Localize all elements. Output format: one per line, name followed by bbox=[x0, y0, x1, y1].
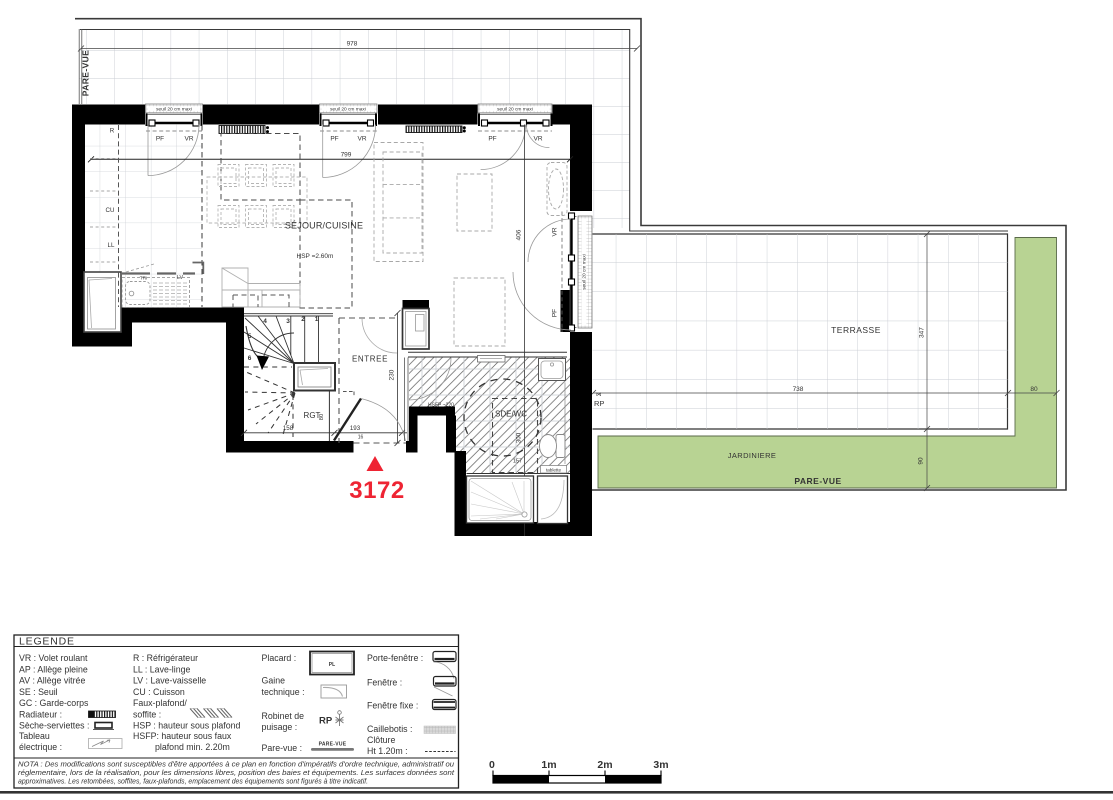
svg-text:4: 4 bbox=[263, 318, 267, 325]
svg-text:Ht 1.20m :: Ht 1.20m : bbox=[367, 746, 408, 756]
svg-text:2: 2 bbox=[301, 316, 305, 323]
svg-text:RP: RP bbox=[319, 716, 333, 727]
svg-text:Fenêtre :: Fenêtre : bbox=[367, 678, 402, 688]
svg-text:PARE-VUE: PARE-VUE bbox=[794, 476, 841, 486]
svg-text:CU: CU bbox=[106, 207, 115, 214]
svg-text:NOTA : Des modifications sont: NOTA : Des modifications sont susceptibl… bbox=[18, 762, 454, 769]
svg-text:Porte-fenêtre :: Porte-fenêtre : bbox=[367, 653, 423, 663]
svg-text:RGT: RGT bbox=[304, 411, 321, 420]
svg-text:SÉJOUR/CUISINE: SÉJOUR/CUISINE bbox=[285, 221, 363, 231]
svg-text:LL: LL bbox=[108, 242, 115, 249]
svg-text:puisage :: puisage : bbox=[262, 722, 298, 732]
svg-text:Clôture: Clôture bbox=[367, 735, 395, 745]
svg-text:3m: 3m bbox=[653, 759, 668, 771]
svg-text:16: 16 bbox=[358, 435, 364, 441]
svg-text:3: 3 bbox=[286, 318, 290, 325]
svg-text:PF: PF bbox=[488, 136, 496, 143]
svg-text:Sèche-serviettes :: Sèche-serviettes : bbox=[19, 720, 89, 730]
svg-text:738: 738 bbox=[793, 386, 804, 393]
svg-text:AV : Allège vitrée: AV : Allège vitrée bbox=[19, 676, 85, 686]
svg-text:Pare-vue :: Pare-vue : bbox=[262, 743, 303, 753]
svg-text:HSP : hauteur sous plafond: HSP : hauteur sous plafond bbox=[133, 720, 241, 730]
svg-text:HSFP: hauteur sous faux: HSFP: hauteur sous faux bbox=[133, 731, 232, 741]
svg-text:PF: PF bbox=[156, 136, 164, 143]
svg-text:VR: VR bbox=[533, 136, 542, 143]
svg-text:193: 193 bbox=[350, 425, 361, 432]
svg-text:JARDINIERE: JARDINIERE bbox=[728, 451, 777, 460]
svg-text:seuil 20 cm maxi: seuil 20 cm maxi bbox=[497, 106, 533, 112]
svg-text:Placard :: Placard : bbox=[262, 653, 297, 663]
svg-text:LV : Lave-vaisselle: LV : Lave-vaisselle bbox=[133, 676, 206, 686]
svg-text:406: 406 bbox=[516, 229, 523, 240]
svg-text:1: 1 bbox=[315, 316, 319, 323]
svg-text:SDE/WC: SDE/WC bbox=[495, 410, 527, 419]
svg-text:Fenêtre fixe :: Fenêtre fixe : bbox=[367, 701, 418, 711]
svg-text:VR : Volet roulant: VR : Volet roulant bbox=[19, 653, 88, 663]
svg-text:VR: VR bbox=[357, 136, 366, 143]
svg-text:LV: LV bbox=[177, 275, 183, 281]
svg-text:AP : Allège pleine: AP : Allège pleine bbox=[19, 664, 88, 674]
svg-text:CU : Cuisson: CU : Cuisson bbox=[133, 687, 185, 697]
svg-text:1m: 1m bbox=[541, 759, 556, 771]
svg-text:TRi: TRi bbox=[140, 276, 147, 282]
svg-text:technique :: technique : bbox=[262, 687, 305, 697]
svg-text:HSFP ~220: HSFP ~220 bbox=[428, 403, 454, 409]
svg-text:réglementaire, lors de la réal: réglementaire, lors de la réalisation, p… bbox=[18, 770, 455, 777]
svg-text:158: 158 bbox=[283, 425, 294, 432]
svg-text:⋈: ⋈ bbox=[596, 392, 602, 398]
svg-text:tablette: tablette bbox=[546, 467, 562, 472]
svg-text:PL: PL bbox=[329, 662, 335, 668]
svg-text:80: 80 bbox=[1030, 386, 1038, 393]
svg-text:0: 0 bbox=[489, 759, 495, 771]
svg-text:ENTREE: ENTREE bbox=[352, 355, 388, 364]
svg-text:Tableau: Tableau bbox=[19, 731, 50, 741]
svg-text:seuil 20 cm maxi: seuil 20 cm maxi bbox=[330, 106, 366, 112]
svg-text:2m: 2m bbox=[597, 759, 612, 771]
svg-text:Caillebotis :: Caillebotis : bbox=[367, 724, 412, 734]
svg-text:Faux-plafond/: Faux-plafond/ bbox=[133, 698, 187, 708]
svg-text:RP: RP bbox=[594, 399, 604, 408]
svg-text:seuil 20 cm maxi: seuil 20 cm maxi bbox=[156, 106, 192, 112]
svg-text:Robinet de: Robinet de bbox=[262, 711, 305, 721]
svg-text:seuil 20 cm maxi: seuil 20 cm maxi bbox=[582, 254, 588, 290]
svg-text:R : Réfrigérateur: R : Réfrigérateur bbox=[133, 653, 198, 663]
svg-text:SE : Seuil: SE : Seuil bbox=[19, 687, 58, 697]
svg-text:HSP =2.60m: HSP =2.60m bbox=[297, 253, 334, 260]
svg-text:électrique :: électrique : bbox=[19, 742, 62, 752]
svg-text:80: 80 bbox=[319, 414, 325, 420]
svg-text:VR: VR bbox=[184, 136, 193, 143]
svg-text:347: 347 bbox=[919, 327, 926, 338]
svg-text:6: 6 bbox=[248, 355, 252, 362]
svg-text:3172: 3172 bbox=[349, 477, 404, 504]
svg-text:978: 978 bbox=[347, 41, 358, 48]
svg-text:LEGENDE: LEGENDE bbox=[19, 636, 75, 648]
svg-text:90: 90 bbox=[918, 457, 925, 465]
svg-text:Radiateur :: Radiateur : bbox=[19, 710, 62, 720]
svg-text:plafond min. 2.20m: plafond min. 2.20m bbox=[155, 742, 230, 752]
svg-text:TERRASSE: TERRASSE bbox=[831, 325, 881, 335]
svg-text:GC : Garde-corps: GC : Garde-corps bbox=[19, 698, 89, 708]
svg-text:soffite :: soffite : bbox=[133, 710, 161, 720]
svg-text:VR: VR bbox=[552, 227, 559, 236]
svg-text:R: R bbox=[110, 128, 115, 135]
svg-text:5: 5 bbox=[248, 333, 252, 340]
svg-text:PF: PF bbox=[330, 136, 338, 143]
svg-text:799: 799 bbox=[341, 152, 352, 159]
svg-text:PF: PF bbox=[552, 309, 559, 317]
svg-text:230: 230 bbox=[389, 369, 396, 380]
svg-text:300: 300 bbox=[516, 432, 523, 443]
svg-text:PARE-VUE: PARE-VUE bbox=[319, 742, 347, 748]
svg-text:PARE-VUE: PARE-VUE bbox=[81, 50, 91, 97]
svg-text:Gaine: Gaine bbox=[262, 676, 286, 686]
svg-text:LL : Lave-linge: LL : Lave-linge bbox=[133, 664, 190, 674]
svg-text:approximatives. Les retombées,: approximatives. Les retombées, soffites,… bbox=[18, 779, 368, 786]
svg-text:157: 157 bbox=[513, 459, 522, 465]
